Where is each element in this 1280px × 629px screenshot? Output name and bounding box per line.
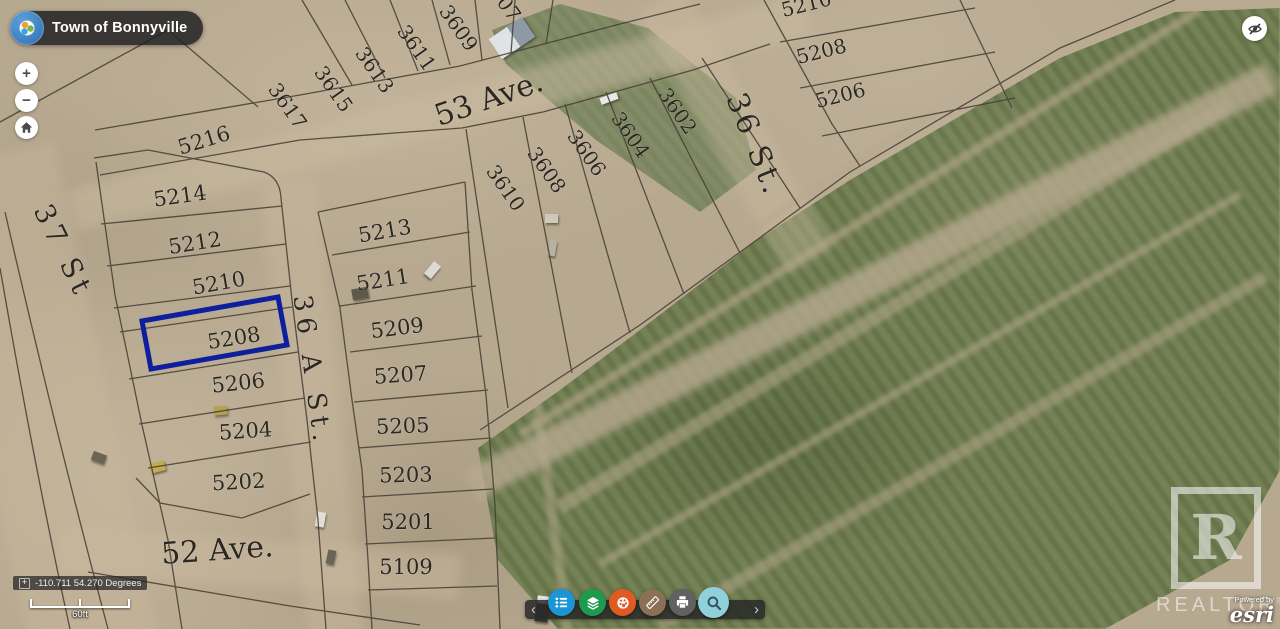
lot-label: 5206 — [813, 77, 868, 113]
lot-label: 3606 — [562, 125, 611, 180]
lot-label: 3602 — [653, 83, 702, 138]
town-logo-icon — [10, 11, 44, 45]
search-icon — [705, 594, 723, 612]
toolbar-prev-button[interactable]: ‹ — [531, 600, 536, 619]
street-label: 36 A St. — [286, 293, 337, 449]
lot-label: 5209 — [369, 313, 425, 343]
scale-bar: 60ft — [30, 600, 130, 620]
street-label: 53 Ave. — [430, 64, 548, 134]
attribution: Powered by esri — [1230, 596, 1274, 625]
visibility-toggle-button[interactable] — [1242, 16, 1267, 41]
lot-label: 5202 — [211, 469, 266, 496]
legend-icon — [554, 595, 569, 610]
toolbar-next-button[interactable]: › — [754, 600, 759, 619]
lot-label: 5109 — [379, 555, 432, 579]
capture-coordinates-icon: + — [19, 578, 30, 589]
lot-label: 3611 — [392, 20, 441, 75]
lot-label: 5210 — [779, 0, 834, 22]
lot-label: 5211 — [355, 264, 412, 296]
app-title-badge: Town of Bonnyville — [10, 11, 203, 45]
lot-label: 5214 — [152, 180, 208, 211]
print-button[interactable] — [669, 589, 696, 616]
street-label: 36 St. — [718, 88, 791, 201]
lot-label: 5210 — [190, 267, 247, 300]
search-button[interactable] — [698, 587, 729, 618]
layers-icon — [585, 595, 601, 611]
layers-button[interactable] — [579, 589, 606, 616]
legend-button[interactable] — [548, 589, 575, 616]
street-label: 52 Ave. — [160, 529, 275, 572]
map-canvas[interactable]: 53 Ave. 52 Ave. 37 St 36 A St. 36 St. 52… — [0, 0, 1280, 629]
scale-bar-label: 60ft — [30, 609, 130, 620]
lot-label: 3610 — [481, 160, 530, 215]
home-button[interactable] — [15, 116, 38, 139]
lot-label: 3613 — [350, 42, 399, 97]
eye-slash-icon — [1247, 21, 1263, 37]
parcel-overlay: 53 Ave. 52 Ave. 37 St 36 A St. 36 St. 52… — [0, 0, 1280, 629]
coordinate-readout: -110.711 54.270 Degrees — [35, 578, 141, 589]
lot-label: 3615 — [309, 61, 358, 116]
printer-icon — [675, 595, 690, 610]
street-label: 37 St — [27, 199, 100, 303]
zoom-out-button[interactable]: − — [15, 89, 38, 112]
lot-label: 3604 — [606, 107, 655, 162]
lot-label: 5204 — [218, 417, 273, 445]
lot-label: 3617 — [263, 78, 312, 133]
lot-label: 5203 — [379, 463, 433, 488]
zoom-in-button[interactable]: + — [15, 62, 38, 85]
realtor-logo: R — [1171, 487, 1261, 589]
palette-icon — [615, 595, 631, 611]
lot-label: 5201 — [381, 510, 434, 534]
lot-label: 3608 — [522, 142, 571, 197]
ruler-icon — [644, 594, 661, 611]
lot-label: 5207 — [373, 361, 428, 389]
lot-label: 5205 — [376, 413, 430, 439]
app-title: Town of Bonnyville — [52, 20, 187, 36]
home-icon — [20, 121, 33, 134]
draw-button[interactable] — [609, 589, 636, 616]
lot-label: 3607 — [477, 0, 526, 26]
coordinate-widget[interactable]: + -110.711 54.270 Degrees — [13, 576, 147, 590]
lot-label: 5212 — [167, 227, 224, 259]
esri-logo: esri — [1230, 604, 1274, 625]
measure-button[interactable] — [639, 589, 666, 616]
scale-bar-line — [30, 600, 130, 608]
lot-label: 5206 — [210, 368, 266, 397]
